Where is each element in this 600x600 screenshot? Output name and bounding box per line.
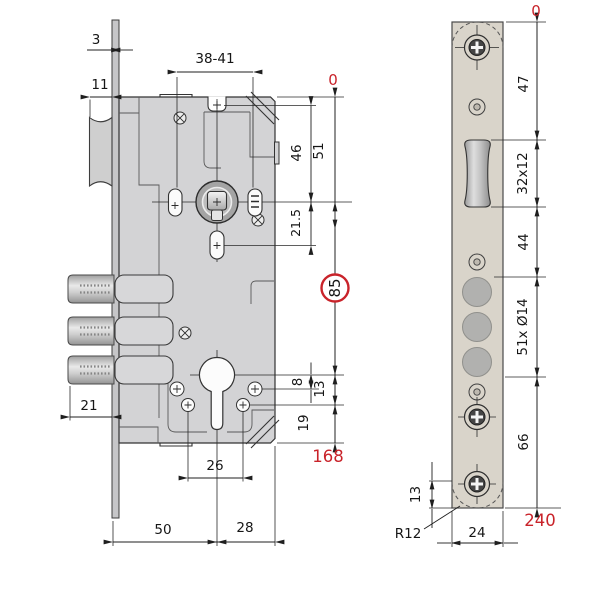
deadbolt-3	[68, 356, 173, 384]
dim-label-plate-thickness: 3	[92, 32, 101, 48]
dim-label-46: 46	[289, 144, 305, 161]
adjust-screw-slot-right	[248, 189, 262, 216]
deadbolt-2	[68, 317, 173, 345]
deadbolt-hole-2	[463, 313, 492, 342]
dim-label-centre-distance: 85	[326, 278, 344, 297]
dim-label-overall-height: 168	[312, 447, 344, 466]
dim-label-screw-to-end: 13	[408, 486, 424, 503]
deadbolt-slot-1	[115, 275, 173, 303]
dim-label-13: 13	[312, 380, 328, 397]
dim-label-19: 19	[296, 414, 312, 431]
deadbolt-pin-3	[68, 356, 114, 384]
deadbolt-pin-2	[68, 317, 114, 345]
deadbolt-slot-3	[115, 356, 173, 384]
follower-lower-slot	[212, 210, 223, 221]
drawing-canvas: 3 11 38-41 0 46 51 21.5 85 8 13 19 168 2…	[0, 0, 600, 600]
dim-label-bolt-holes: 51x Ø14	[515, 298, 531, 355]
dim-label-8: 8	[290, 378, 306, 387]
follower-hub	[196, 181, 238, 223]
dim-label-end-radius: R12	[395, 526, 422, 542]
latch-cutout	[465, 140, 491, 207]
deadbolt-hole-1	[463, 278, 492, 307]
case-edge-tab	[275, 142, 280, 164]
pin-hole	[469, 254, 485, 270]
screw-hole-cross	[170, 382, 184, 396]
pin-hole	[469, 99, 485, 115]
deadbolt-pin-1	[68, 275, 114, 303]
deadbolt-1	[68, 275, 173, 303]
dim-label-case-depth: 28	[236, 520, 253, 536]
deadbolts	[68, 275, 173, 384]
dim-label-latch-cutout: 32x12	[515, 152, 531, 194]
dim-label-66: 66	[516, 433, 532, 450]
faceplate-edge	[112, 20, 119, 518]
dim-label-44: 44	[516, 233, 532, 250]
side-view: 3 11 38-41 0 46 51 21.5 85 8 13 19 168 2…	[68, 20, 352, 546]
dim-label-front-zero: 0	[531, 2, 541, 20]
deadbolt-hole-3	[463, 348, 492, 377]
screw-hole-cross	[182, 399, 195, 412]
screw-hole-cross	[237, 399, 250, 412]
screw-x-icon	[174, 112, 186, 124]
deadbolt-slot-2	[115, 317, 173, 345]
dim-label-51: 51	[311, 142, 327, 159]
dim-label-plate-width: 24	[468, 525, 485, 541]
dim-label-47: 47	[516, 75, 532, 92]
lock-technical-drawing: 3 11 38-41 0 46 51 21.5 85 8 13 19 168 2…	[0, 0, 600, 600]
dim-label-latch-protrusion: 11	[91, 77, 108, 93]
dim-label-cyl-screw-span: 26	[206, 458, 223, 474]
r12-leader	[424, 506, 460, 529]
screw-hole-cross	[248, 382, 262, 396]
dim-label-backset: 50	[154, 522, 171, 538]
dim-label-bolt-throw: 21	[80, 398, 97, 414]
dim-label-handle-screw-span: 38-41	[195, 51, 234, 67]
deadbolt-holes	[463, 278, 492, 377]
dim-label-21-5: 21.5	[288, 209, 303, 237]
latch-bolt	[90, 118, 113, 187]
handle-screw-slot-left	[169, 189, 183, 216]
front-view: 0 47 32x12 44 51x Ø14 66 240 13 R12 24	[395, 2, 561, 547]
fixing-slot-below-follower	[210, 231, 224, 259]
dim-label-plate-length: 240	[524, 511, 556, 530]
screw-x-icon	[179, 327, 191, 339]
dim-label-ref-zero: 0	[328, 71, 338, 89]
